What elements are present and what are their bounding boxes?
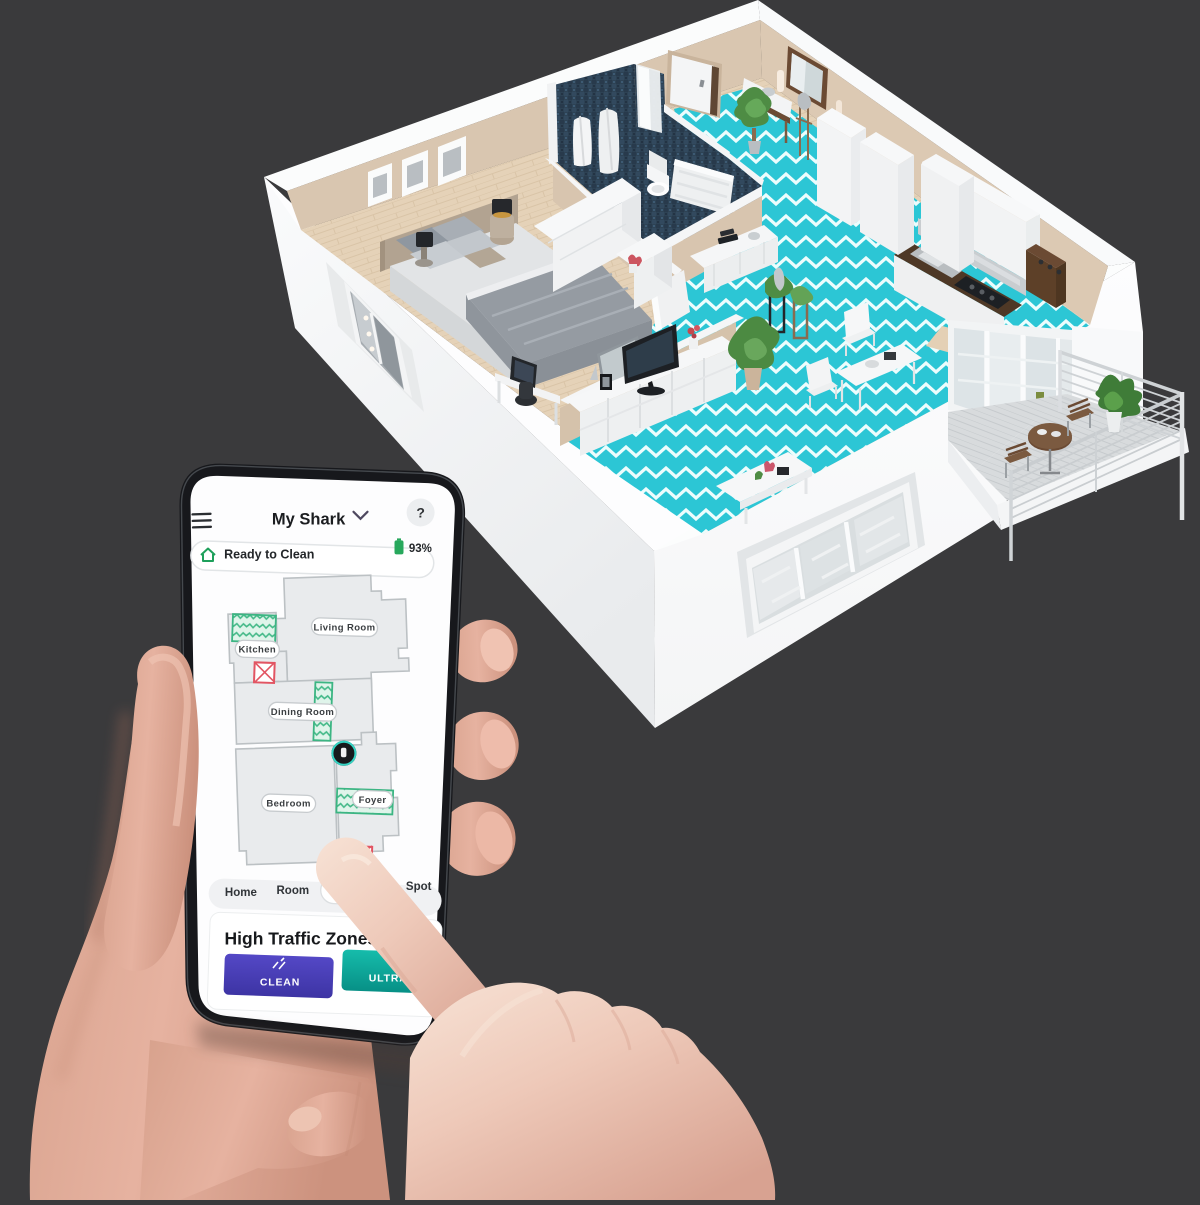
svg-text:Living Room: Living Room — [314, 623, 376, 634]
svg-text:Ready to Clean: Ready to Clean — [224, 547, 314, 561]
svg-text:Kitchen: Kitchen — [238, 645, 276, 656]
svg-text:My Shark: My Shark — [272, 511, 346, 529]
svg-text:CLEAN: CLEAN — [260, 977, 300, 989]
svg-text:Bedroom: Bedroom — [266, 799, 311, 810]
svg-text:Dining Room: Dining Room — [271, 707, 335, 718]
svg-text:High Traffic Zones: High Traffic Zones — [225, 929, 378, 949]
svg-text:Home: Home — [225, 887, 257, 899]
svg-text:?: ? — [416, 505, 425, 521]
svg-text:Spot: Spot — [406, 881, 432, 893]
svg-text:Foyer: Foyer — [359, 795, 387, 806]
svg-text:Room: Room — [277, 885, 310, 897]
svg-text:93%: 93% — [409, 543, 432, 555]
